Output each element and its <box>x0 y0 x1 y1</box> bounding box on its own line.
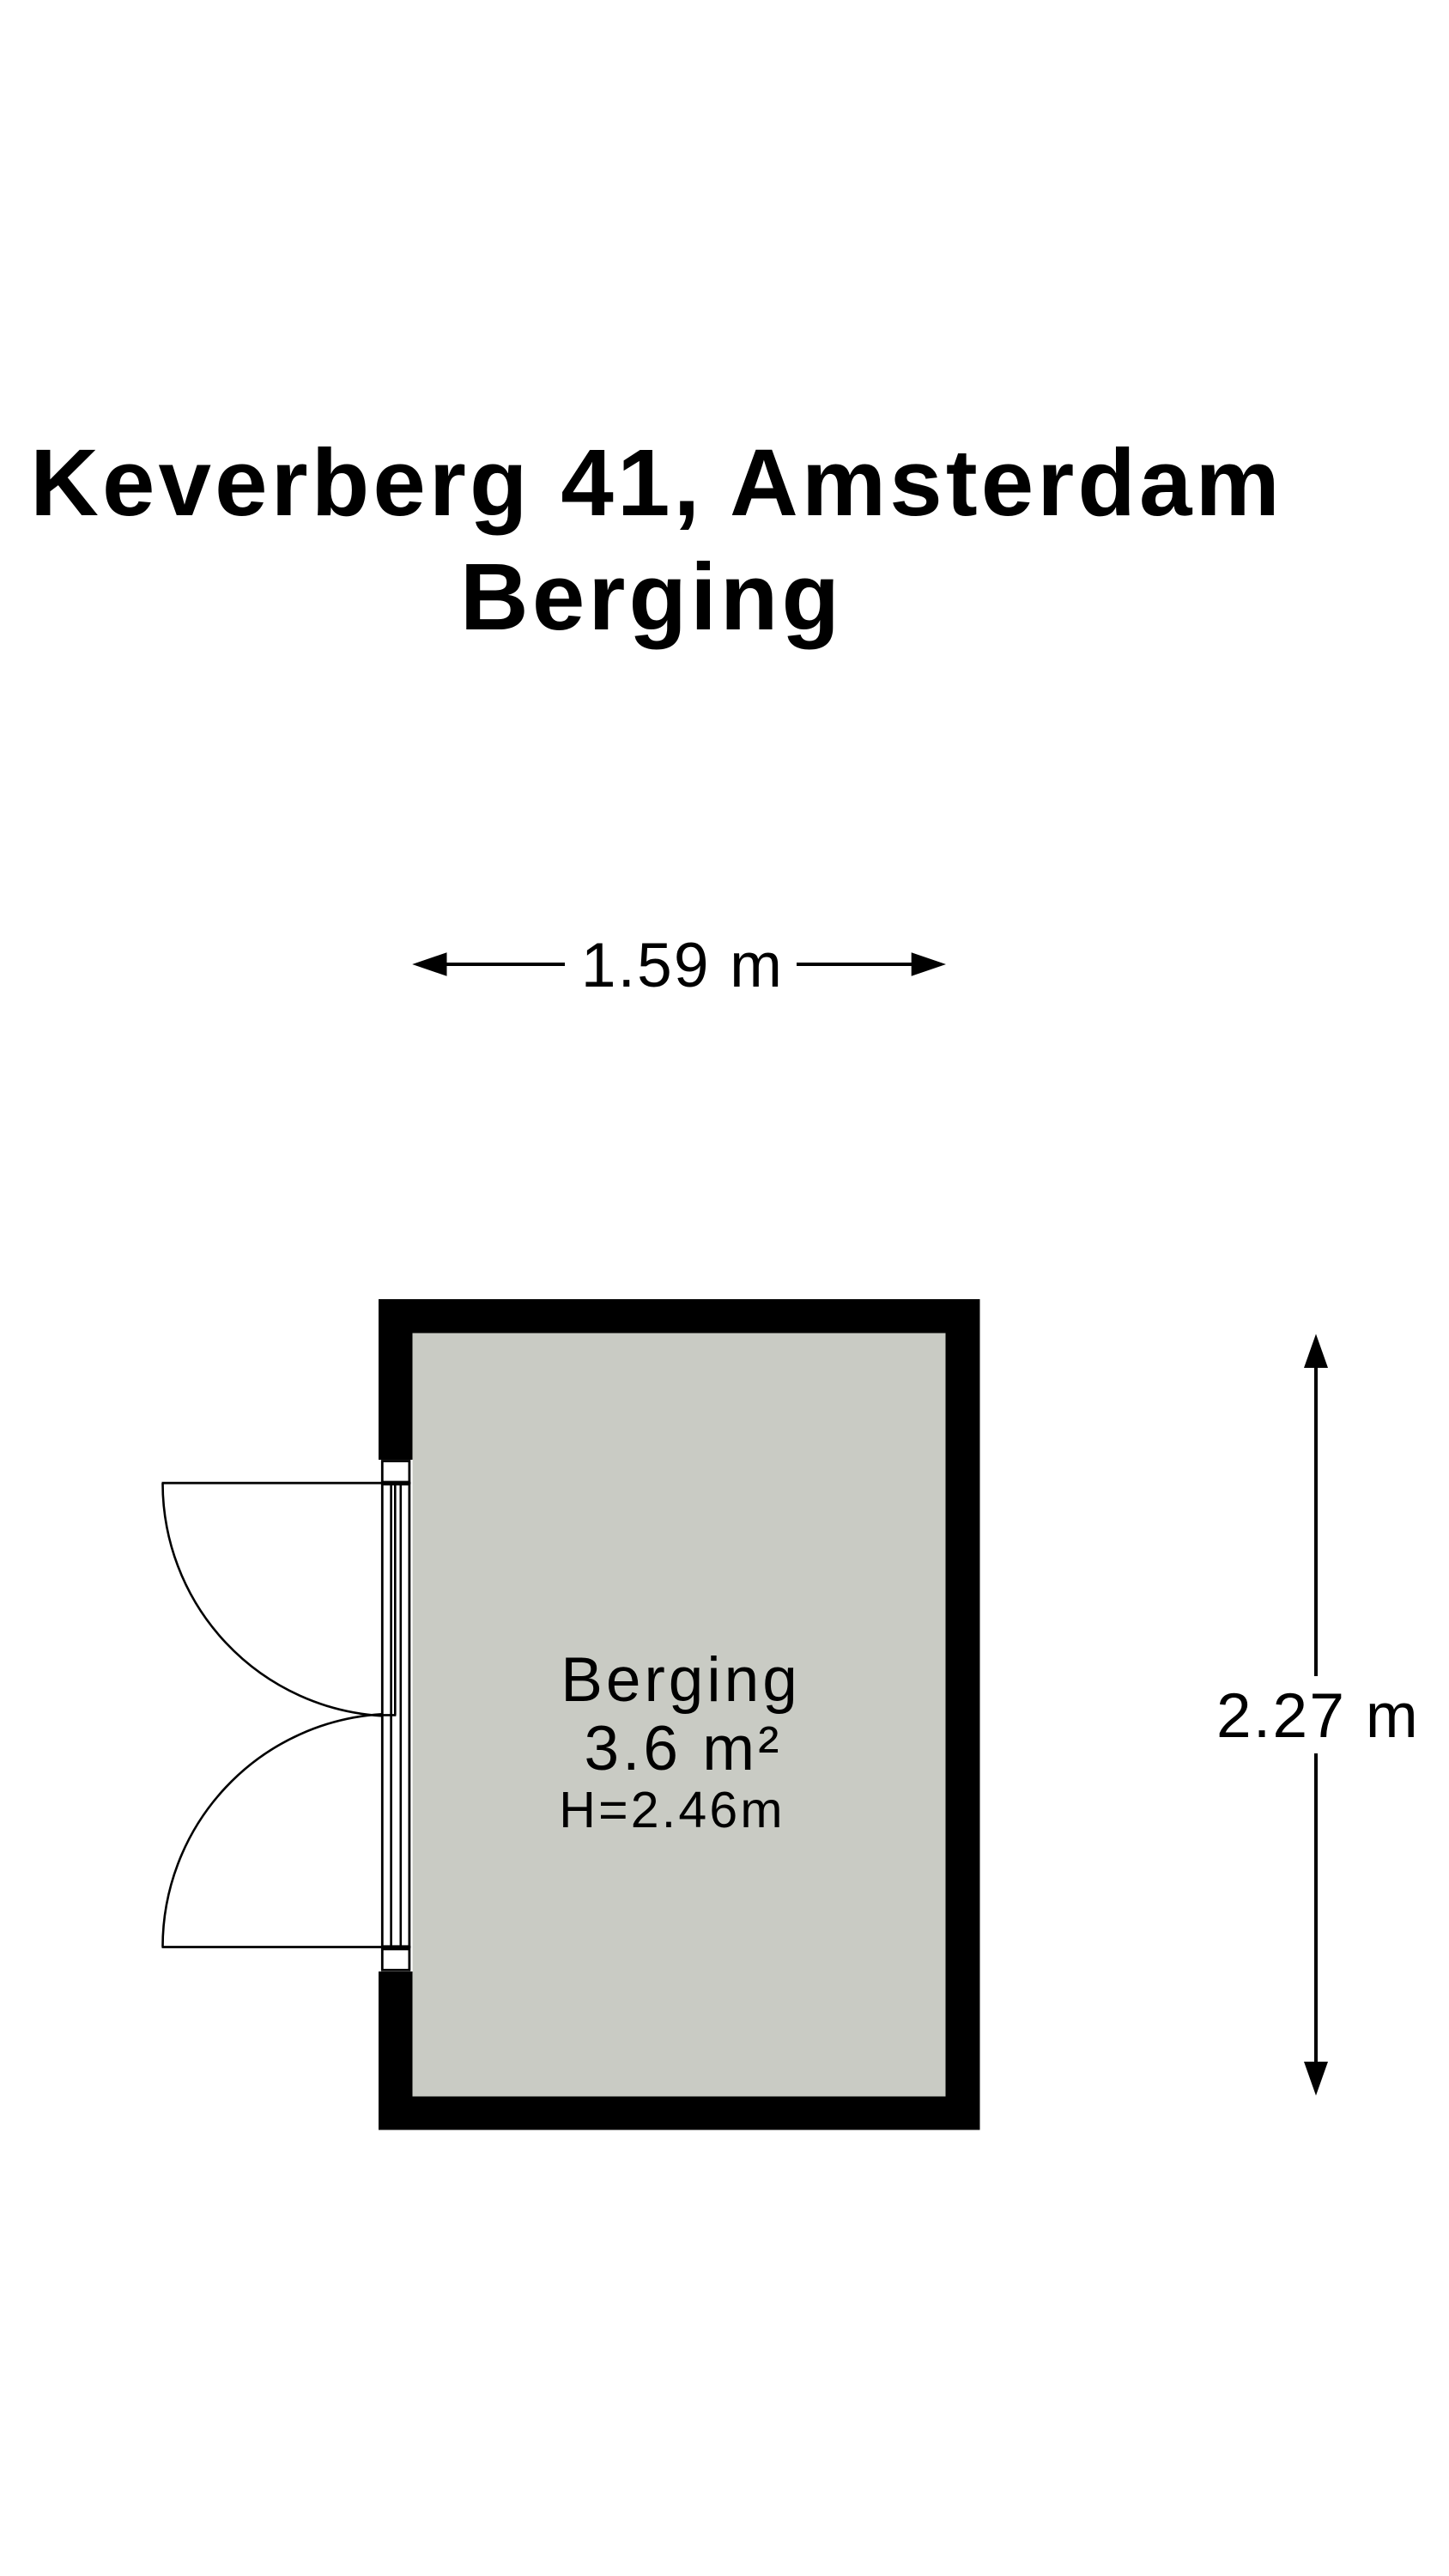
svg-text:Berging: Berging <box>460 544 843 650</box>
svg-text:Keverberg 41, Amsterdam: Keverberg 41, Amsterdam <box>30 430 1283 536</box>
svg-text:2.27 m: 2.27 m <box>1216 1681 1420 1751</box>
svg-text:H=2.46m: H=2.46m <box>559 1782 785 1838</box>
svg-text:1.59 m: 1.59 m <box>581 931 784 1000</box>
svg-text:3.6 m²: 3.6 m² <box>585 1714 783 1783</box>
svg-text:Berging: Berging <box>561 1645 801 1715</box>
